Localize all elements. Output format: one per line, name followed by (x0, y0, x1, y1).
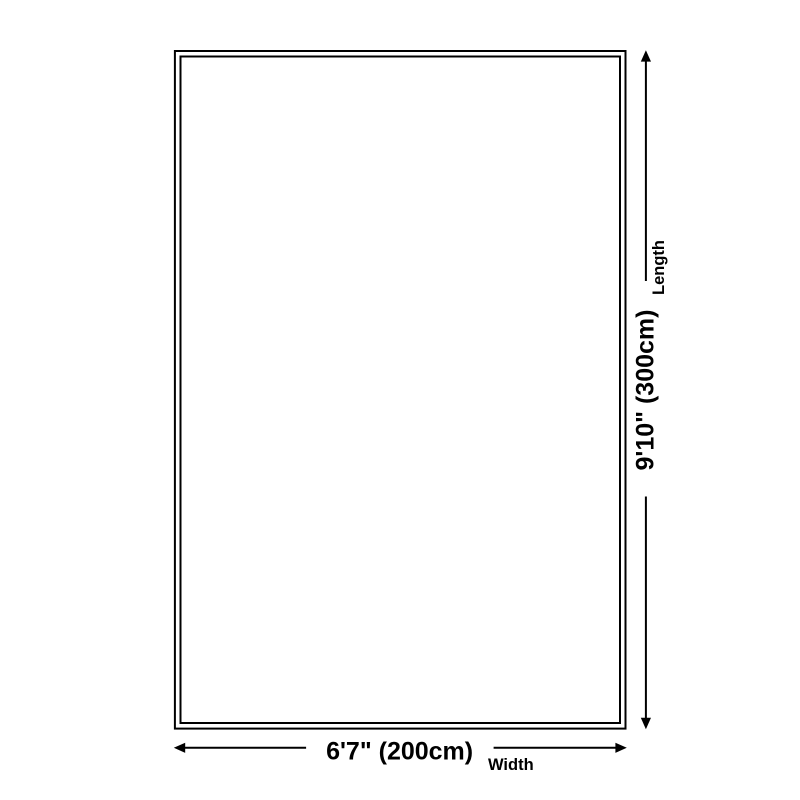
svg-text:6'7" (200cm): 6'7" (200cm) (326, 738, 473, 766)
svg-text:Length: Length (650, 240, 668, 295)
svg-text:9'10" (300cm): 9'10" (300cm) (632, 310, 660, 471)
svg-text:Width: Width (488, 756, 534, 774)
